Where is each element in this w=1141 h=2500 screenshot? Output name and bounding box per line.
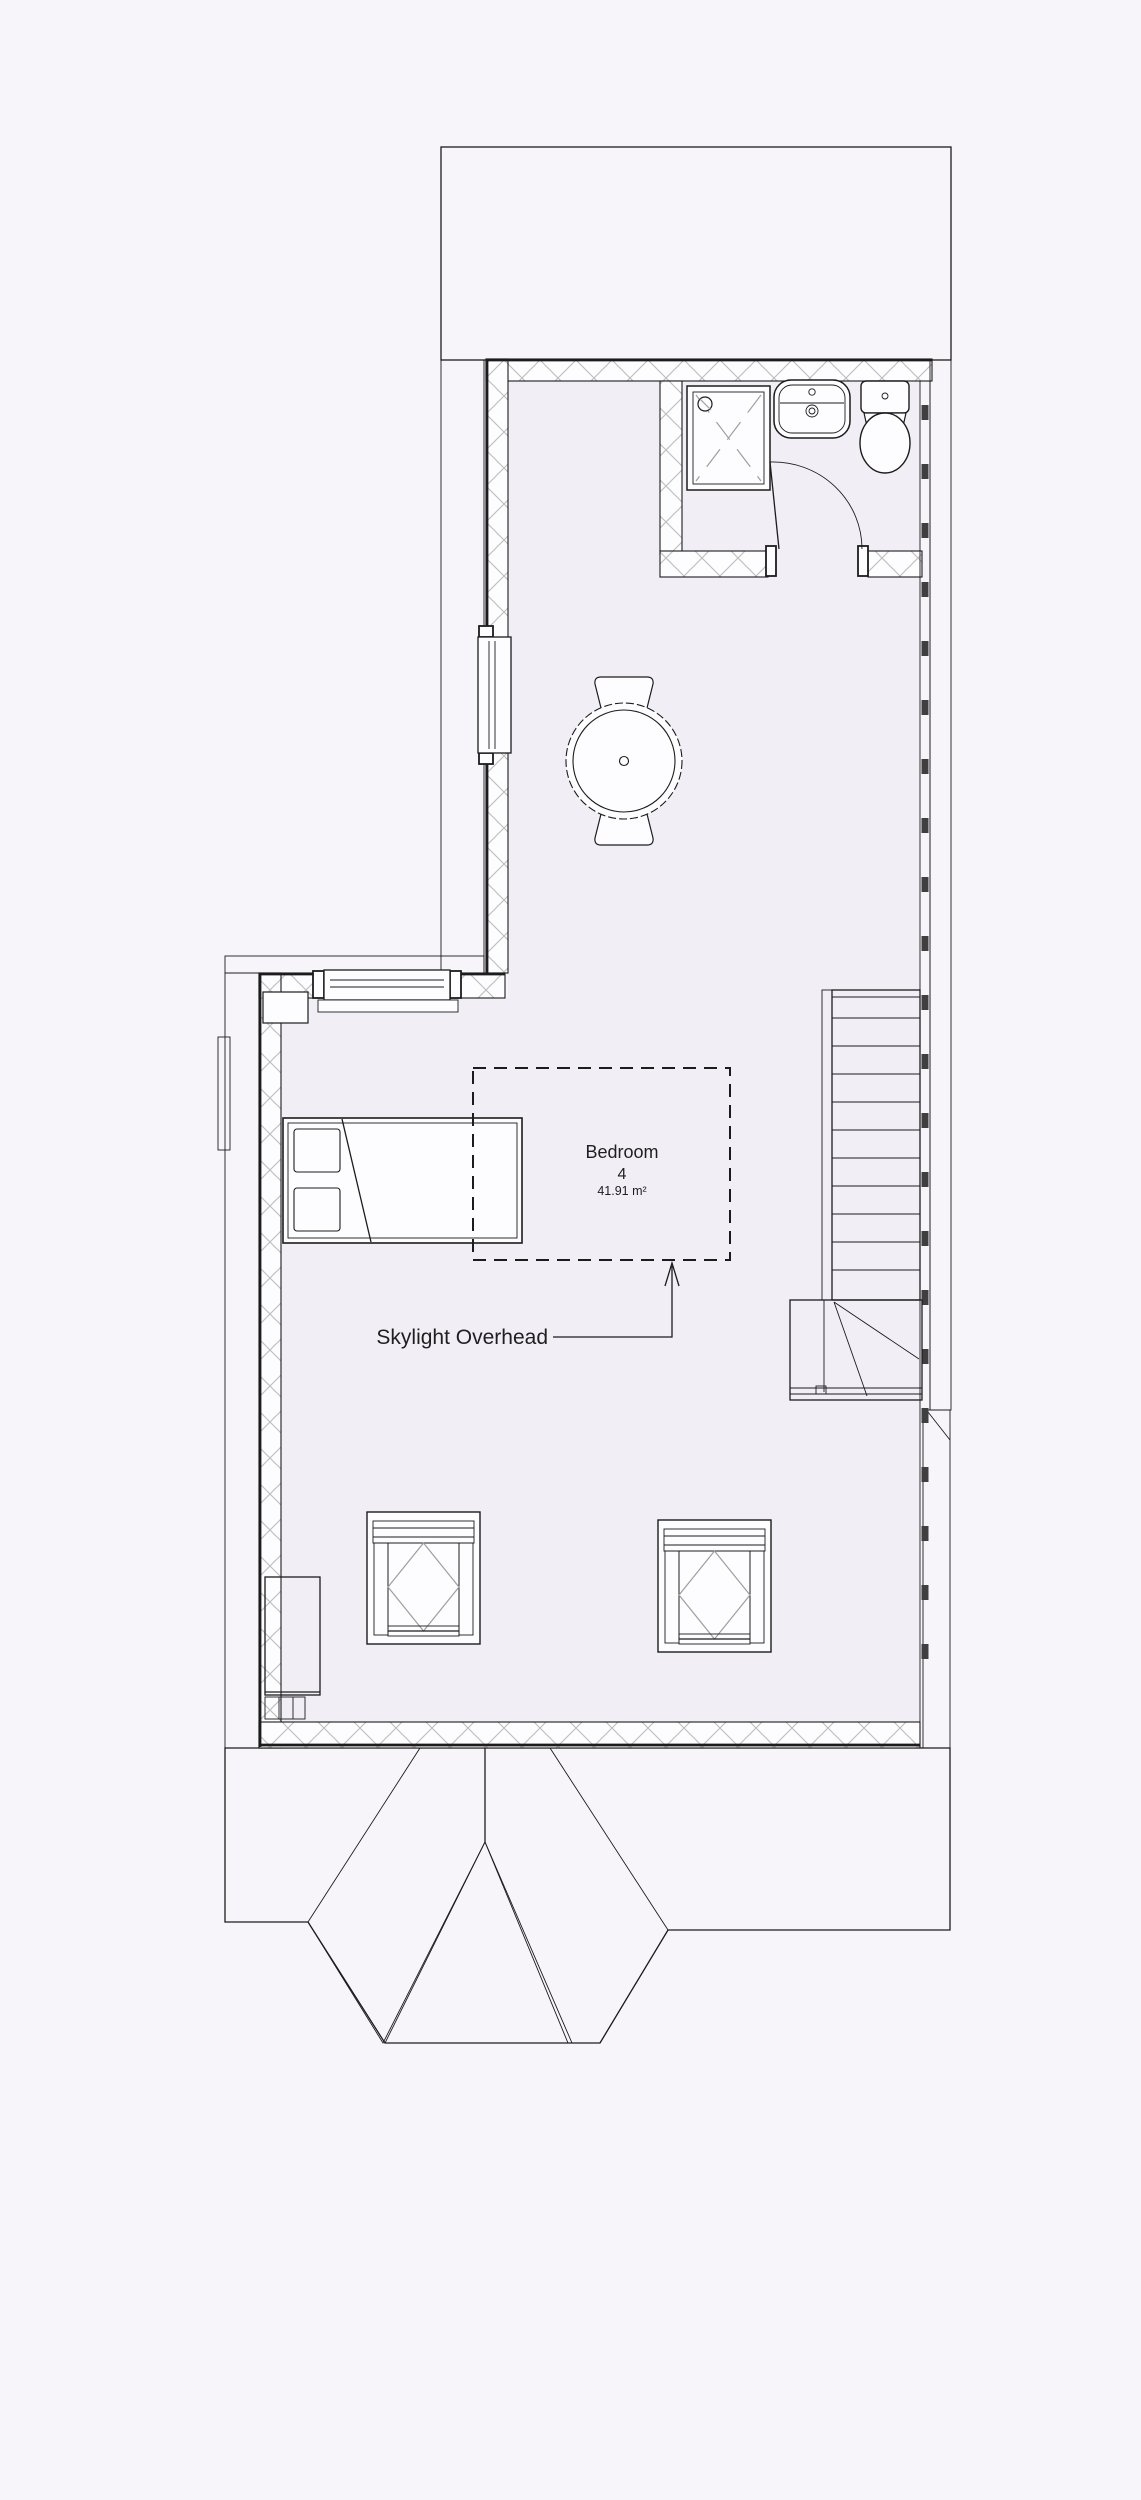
room-name: Bedroom: [585, 1142, 658, 1162]
armchair-right: [658, 1520, 771, 1652]
shower: [687, 386, 770, 490]
roof-strip-right: [930, 360, 951, 1410]
room-number: 4: [618, 1166, 627, 1183]
skylight-annotation: Skylight Overhead: [376, 1326, 548, 1349]
toilet: [860, 381, 910, 473]
table-center: [620, 757, 629, 766]
roof-bay-front: [385, 1842, 572, 2043]
roof-tiles-top: [441, 147, 951, 360]
roof-valley-mark: [928, 1412, 950, 1440]
wall-bath-partition: [660, 381, 682, 555]
floor-plan-drawing: Bedroom 4 41.91 m² Skylight Overhead: [0, 0, 1141, 2500]
window-top-lower: [313, 970, 461, 1012]
corner-column: [263, 992, 308, 1023]
chimney: [218, 1037, 230, 1150]
roof-strip-right-lower: [923, 1410, 950, 1748]
room-area: 41.91 m²: [597, 1184, 646, 1198]
pillow: [294, 1188, 340, 1231]
pillow: [294, 1129, 340, 1172]
floor-plan-page: Bedroom 4 41.91 m² Skylight Overhead: [0, 0, 1141, 2500]
armchair-left: [367, 1512, 480, 1644]
wall-bath-bottom-right: [868, 551, 922, 577]
window-left-upper: [478, 626, 511, 764]
wall-left-lower: [259, 973, 281, 1748]
wall-bath-bottom-left: [660, 551, 768, 577]
bed: [283, 1118, 522, 1243]
washbasin: [774, 380, 850, 438]
roof-field-bottom: [225, 1748, 950, 2043]
roof-hip-right: [485, 1748, 668, 2043]
wall-top-upper: [486, 359, 932, 381]
hip-roof-bay: [225, 1748, 950, 2043]
